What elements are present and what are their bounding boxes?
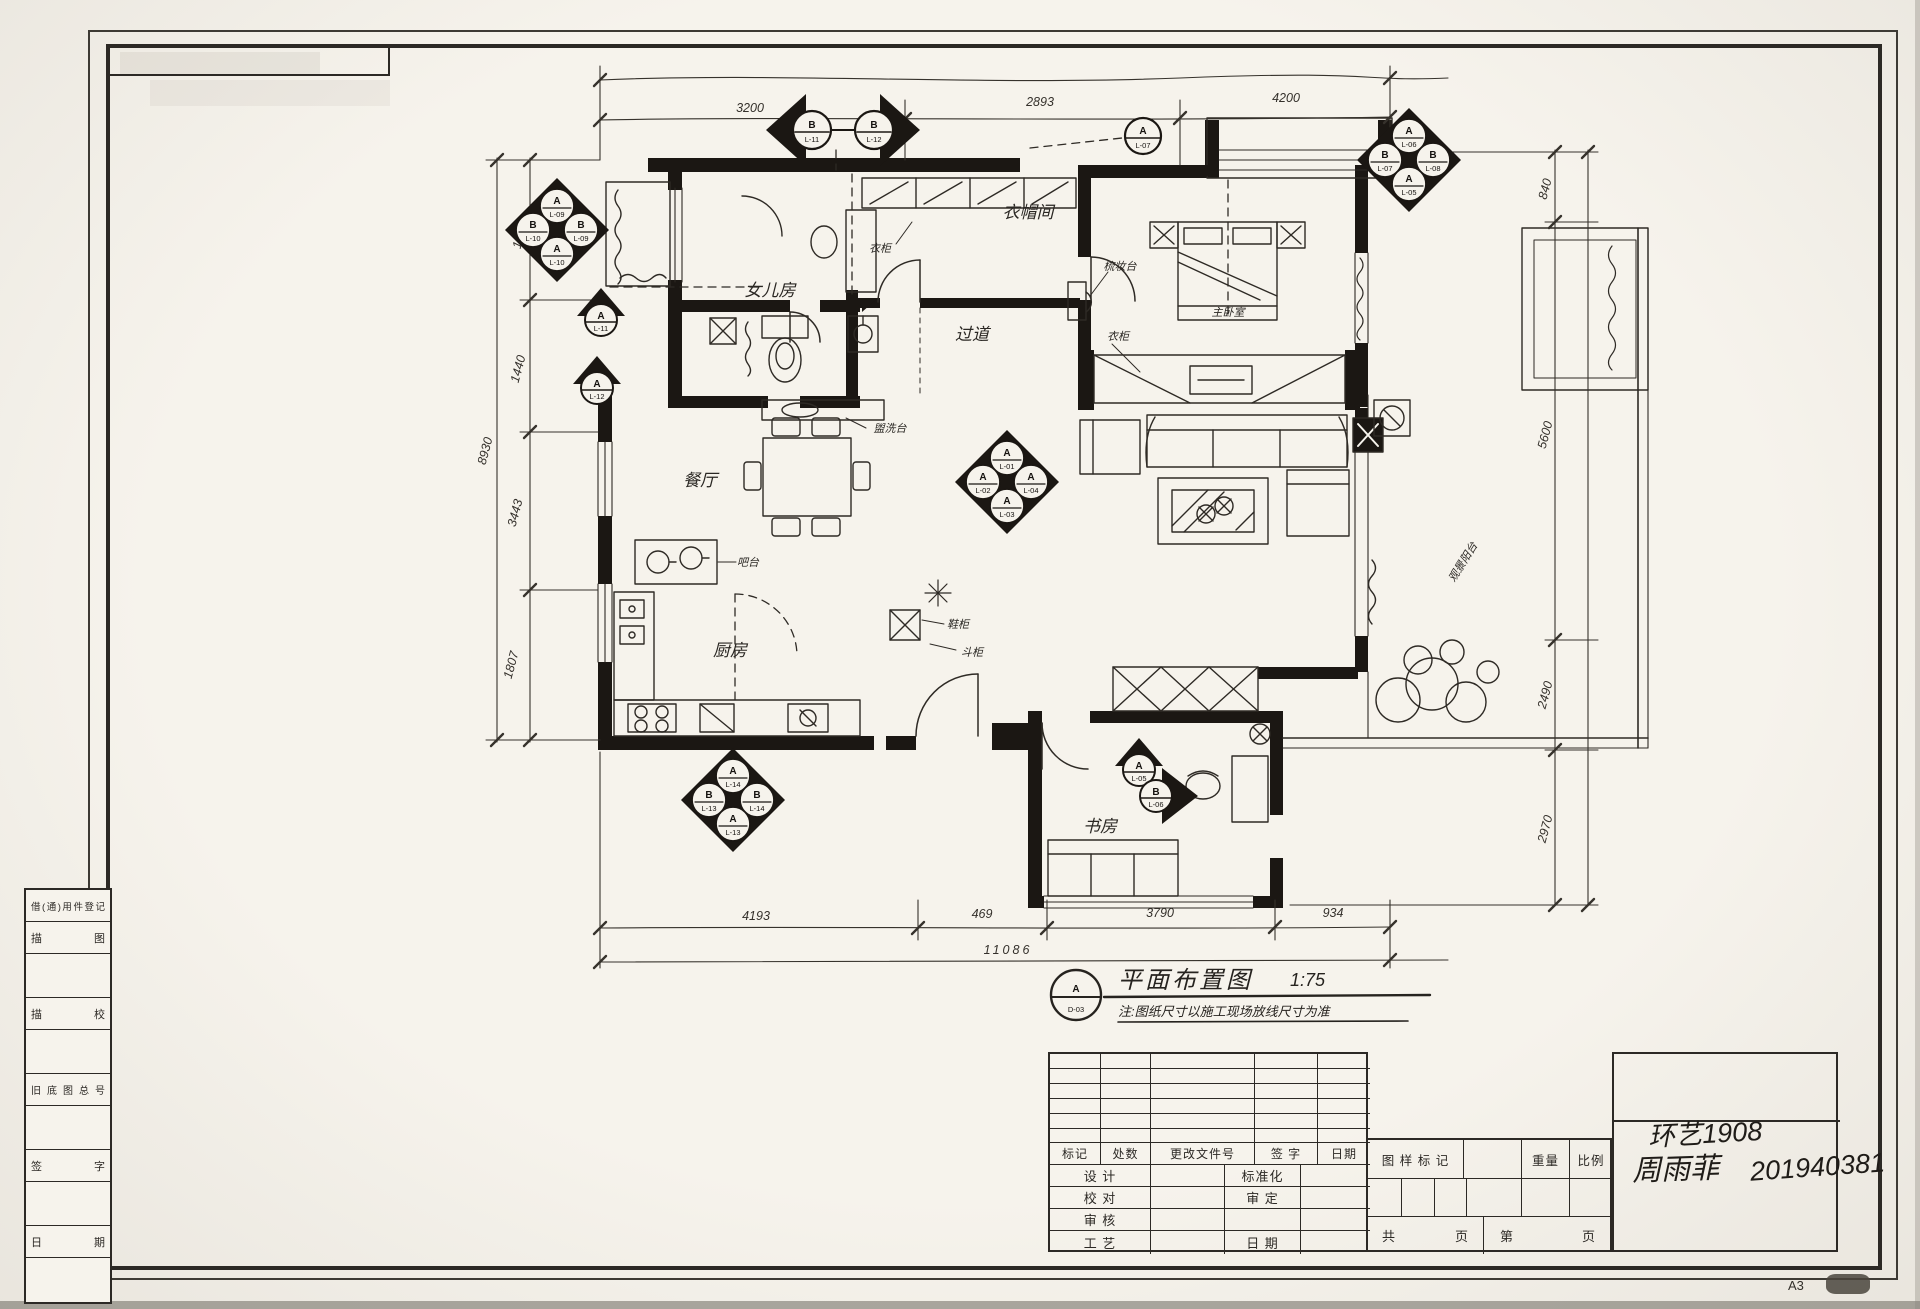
dim-top-2: 2893 [1025,95,1054,109]
marker-letter: A [597,311,604,322]
marker-code: L-05 [1401,188,1416,197]
dim-right-1: 840 [1536,177,1555,201]
marker-code: L-14 [725,780,740,789]
marker-letter: A [1139,126,1146,137]
label-dresser: 梳妆台 [1104,260,1138,273]
marker-code: L-10 [549,258,564,267]
label-wardrobe-1: 衣柜 [869,242,893,255]
marker-code: L-10 [525,234,540,243]
plan-title-text: 平面布置图 [1118,967,1253,994]
marker-letter: B [529,220,536,231]
marker-letter: B [753,790,760,801]
room-daughter: 女儿房 [745,281,798,300]
elev-marker-cluster-living: A L-01 A L-02 A L-04 A L-03 [955,430,1059,534]
marker-letter: B [870,120,877,131]
marker-code: L-07 [1135,141,1150,150]
dim-bottom-1: 4193 [742,909,770,923]
marker-code: L-06 [1148,800,1163,809]
label-shoe-cabinet: 鞋柜 [947,618,971,631]
plan-title: A D-03 平面布置图 1:75 注:图纸尺寸以施工现场放线尺寸为准 [1051,967,1430,1022]
marker-code: L-05 [1131,774,1146,783]
marker-letter: A [1135,761,1142,772]
marker-letter: B [1429,150,1436,161]
elev-marker-top-circle: A L-07 [1125,118,1161,154]
marker-code: L-11 [594,324,608,333]
plan-title-note: 注:图纸尺寸以施工现场放线尺寸为准 [1118,1004,1332,1019]
room-balcony: 观景阳台 [1446,539,1481,584]
dim-left-4: 1807 [501,649,522,680]
room-master: 主卧室 [1212,306,1247,319]
marker-code: L-07 [1377,164,1392,173]
dim-left-3: 3443 [505,498,526,529]
dim-right-2: 5600 [1535,420,1556,451]
marker-code: L-11 [805,135,819,144]
room-dining: 餐厅 [683,471,720,490]
marker-letter: B [1152,787,1159,798]
room-bar: 吧台 [737,556,760,569]
dim-left-2: 1440 [508,354,529,385]
marker-code: L-12 [589,392,604,401]
marker-letter: A [553,196,560,207]
elev-marker-study-up: A L-05 [1115,738,1163,786]
dim-right-4: 2970 [1535,814,1556,845]
marker-letter: A [1003,496,1010,507]
marker-code: L-09 [549,210,564,219]
room-hall: 过道 [955,325,992,344]
marker-code: L-09 [573,234,588,243]
dim-right-3: 2490 [1535,680,1556,711]
marker-code: L-13 [701,804,716,813]
drawing-sheet: 借(通)用件登记 描图 描校 旧底图总号 签字 日期 标记 处数 更改文件号 签… [0,0,1920,1309]
marker-code: L-04 [1023,486,1038,495]
dim-bottom-3: 3790 [1146,906,1174,920]
room-kitchen: 厨房 [713,641,749,660]
marker-letter: A [729,766,736,777]
floor-plan-drawing: 3200 2893 4200 1812 1440 3443 1807 8930 … [0,0,1920,1309]
marker-code: L-03 [999,510,1014,519]
marker-letter: B [705,790,712,801]
title-marker-letter: A [1072,984,1079,995]
marker-letter: A [1405,126,1412,137]
elev-marker-cluster-topright: A L-06 B L-07 B L-08 A L-05 [1357,108,1461,212]
dim-left-total: 8930 [475,436,496,467]
marker-letter: A [1003,448,1010,459]
elev-marker-west-single-1: A L-11 [577,288,625,336]
marker-letter: A [1027,472,1034,483]
dim-bottom-2: 469 [972,907,993,921]
marker-letter: A [553,244,560,255]
marker-code: L-14 [749,804,764,813]
marker-code: L-06 [1401,140,1416,149]
marker-code: L-12 [866,135,881,144]
elev-marker-cluster-west: A L-09 B L-10 B L-09 A L-10 [505,178,609,282]
marker-code: L-01 [999,462,1014,471]
marker-code: L-08 [1425,164,1440,173]
marker-letter: A [729,814,736,825]
marker-letter: A [979,472,986,483]
label-wardrobe-2: 衣柜 [1107,330,1131,343]
dashed-guides [610,138,1228,700]
elev-marker-pair-top: B L-11 B L-12 [766,94,920,166]
elev-marker-west-single-2: A L-12 [573,356,621,404]
marker-letter: A [1405,174,1412,185]
marker-letter: B [1381,150,1388,161]
label-washbasin: 盥洗台 [874,422,908,435]
label-chest: 斗柜 [961,646,985,659]
marker-letter: B [808,120,815,131]
dim-top-3: 4200 [1272,91,1300,105]
marker-code: L-02 [975,486,990,495]
dim-top-1: 3200 [736,101,764,115]
plan-title-scale: 1:75 [1290,970,1326,990]
marker-letter: A [593,379,600,390]
marker-code: L-13 [725,828,740,837]
elev-marker-cluster-south: A L-14 B L-13 B L-14 A L-13 [681,748,785,852]
marker-letter: B [577,220,584,231]
room-study: 书房 [1083,817,1119,836]
title-marker-code: D-03 [1068,1005,1084,1014]
dim-bottom-total: 11086 [984,943,1033,957]
room-cloak: 衣帽间 [1003,203,1056,222]
dim-bottom-4: 934 [1323,906,1344,920]
